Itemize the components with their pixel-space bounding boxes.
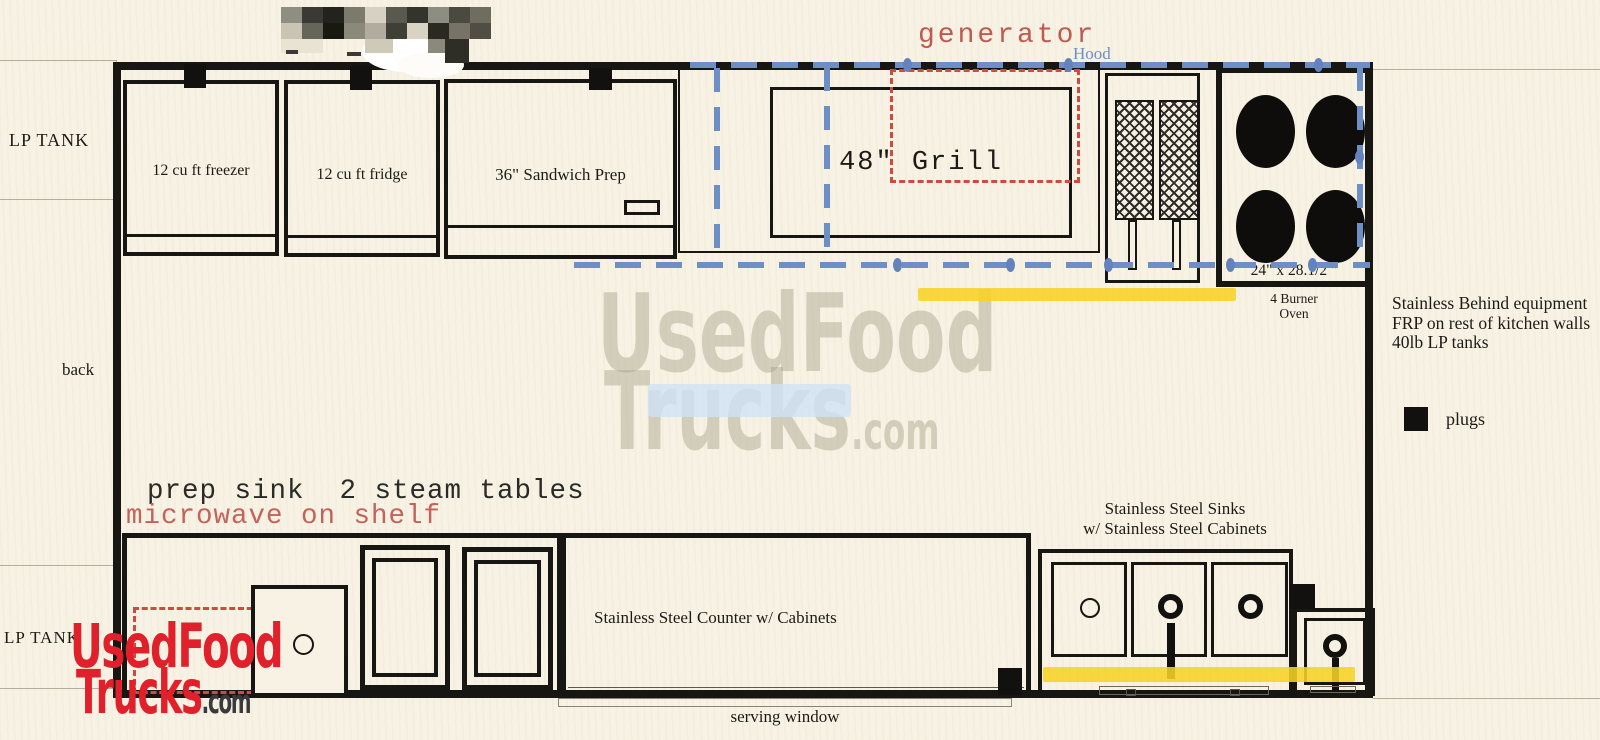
counter-base-line [568, 687, 1024, 688]
cabinet-foot [1230, 689, 1240, 696]
hood-dot [1226, 258, 1235, 272]
hood-dot [1064, 58, 1073, 72]
oven-box: 24" x 28.1/2 " [1216, 67, 1372, 287]
lp-tank-top-label: LP TANK [9, 130, 89, 151]
sink-compartment [1211, 562, 1288, 657]
hood-dot [893, 258, 902, 272]
plug-marker [589, 68, 612, 90]
counter-label: Stainless Steel Counter w/ Cabinets [594, 608, 837, 628]
plug-marker [1290, 584, 1315, 609]
sink-compartment [1131, 562, 1207, 657]
freezer-label: 12 cu ft freezer [127, 162, 275, 180]
censored-mosaic [281, 5, 493, 77]
hood-dot [1314, 58, 1323, 72]
fryer-box [1105, 73, 1200, 283]
notes-line3: 40lb LP tanks [1392, 333, 1590, 353]
notes-block: Stainless Behind equipment FRP on rest o… [1392, 294, 1590, 353]
notes-line1: Stainless Behind equipment [1392, 294, 1590, 314]
paper-edge-line-top [1373, 69, 1600, 70]
hood-outline-right [1357, 67, 1363, 264]
steam-table-inner [474, 560, 541, 677]
sandwich-prep-box: 36" Sandwich Prep [444, 79, 677, 259]
steam-table-inner [372, 558, 438, 677]
fryer-basket [1115, 100, 1154, 220]
lp-tank-bottom-label: LP TANK [4, 628, 80, 648]
oven-caption-line1: 4 Burner [1216, 291, 1372, 306]
oven-caption: 4 Burner Oven [1216, 291, 1372, 321]
sandwich-prep-drawer [624, 200, 660, 215]
hood-dot [1308, 258, 1317, 272]
plug-marker [998, 668, 1022, 695]
sink-faucet [1158, 594, 1183, 619]
generator-label: generator [918, 20, 1096, 51]
cabinet-foot [1126, 689, 1136, 696]
bottom-watermark-line2: Trucks.com [76, 666, 250, 721]
freezer-shelf-line [127, 234, 275, 237]
back-label: back [62, 360, 94, 380]
fridge-shelf-line [288, 235, 436, 238]
generator-outline [890, 69, 1080, 183]
notes-line2: FRP on rest of kitchen walls [1392, 314, 1590, 334]
sinks-label-line2: w/ Stainless Steel Cabinets [1055, 519, 1295, 539]
mosaic-tick [347, 52, 361, 56]
hood-divider-line [824, 67, 830, 264]
steam-table-box [462, 547, 553, 690]
sink-faucet [1238, 594, 1263, 619]
bottom-watermark-trucks: Trucks [76, 657, 202, 728]
fridge-box: 12 cu ft fridge [284, 80, 440, 257]
sink-compartment [1051, 562, 1127, 657]
sinks-label-line1: Stainless Steel Sinks [1055, 499, 1295, 519]
plugs-legend-label: plugs [1446, 409, 1485, 430]
hood-dot [1355, 150, 1364, 164]
steam-table-box [360, 545, 450, 690]
counter-box: Stainless Steel Counter w/ Cabinets [561, 533, 1031, 698]
hood-outline-top [690, 62, 1370, 68]
bottom-watermark-suffix: .com [202, 682, 251, 721]
oven-burner [1236, 190, 1295, 263]
hood-outline-bottom [574, 262, 1370, 268]
yellow-highlight-grill [918, 288, 1236, 301]
hood-dot [1006, 258, 1015, 272]
hood-dot [1104, 258, 1113, 272]
hood-outline-left [714, 68, 720, 264]
hand-sink-box [1293, 608, 1375, 696]
sandwich-prep-shelf-line [448, 225, 673, 228]
serving-window-label: serving window [558, 707, 1012, 727]
mosaic-tick [286, 50, 298, 54]
sink-drain [1080, 598, 1100, 618]
hand-sink-base [1310, 686, 1356, 693]
fryer-basket [1159, 100, 1199, 220]
freezer-box: 12 cu ft freezer [123, 80, 279, 256]
prep-sink-drain [293, 634, 314, 655]
sandwich-prep-label: 36" Sandwich Prep [448, 165, 673, 185]
paper-edge-line-bottom [1373, 698, 1600, 699]
fridge-label: 12 cu ft fridge [288, 166, 436, 184]
hand-sink-faucet [1323, 634, 1347, 658]
serving-window-outline [558, 698, 1012, 707]
microwave-note: microwave on shelf [126, 501, 441, 532]
plugs-legend-swatch [1404, 407, 1428, 431]
yellow-highlight-sinks [1043, 667, 1355, 682]
floor-plan-page: LP TANK back LP TANK UsedFood Trucks.com… [0, 0, 1600, 740]
oven-caption-line2: Oven [1216, 306, 1372, 321]
oven-burner [1236, 95, 1295, 168]
plug-marker [184, 64, 206, 88]
hood-dot [903, 58, 912, 72]
sinks-label: Stainless Steel Sinks w/ Stainless Steel… [1055, 499, 1295, 538]
sink-cabinet-base [1099, 686, 1269, 695]
